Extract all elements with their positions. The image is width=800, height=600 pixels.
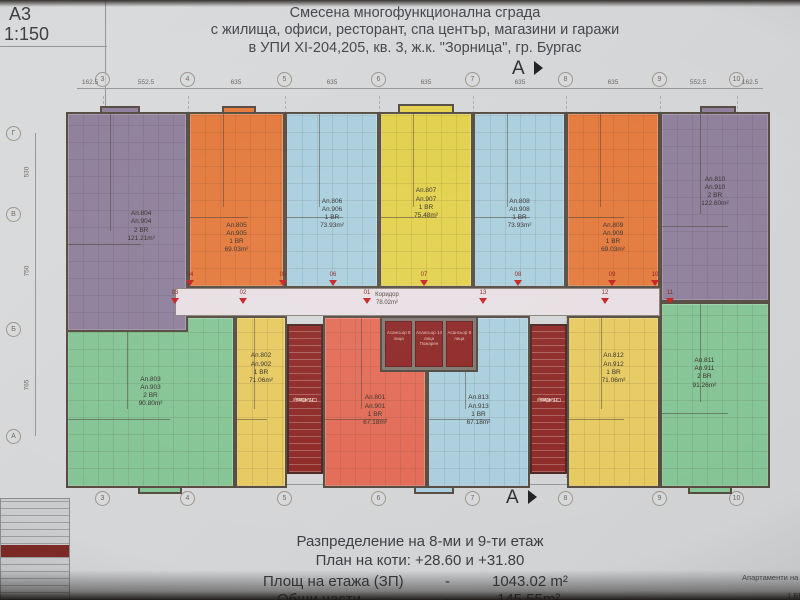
dim-left-2: 750: [24, 266, 31, 277]
title-line-3: в УПИ XI-204,205, кв. 3, ж.к. "Зорница",…: [130, 40, 700, 57]
grid-bubble-bottom-7: 7: [465, 491, 480, 506]
grid-bubble-top-5: 5: [277, 72, 292, 87]
sheet-format: А3: [9, 4, 31, 25]
floor-area-value: 1043.02 m²: [492, 573, 568, 590]
dim-top-4: 635: [327, 79, 338, 86]
grid-bubble-bottom-5: 5: [277, 491, 292, 506]
stair-area: 22.42m²: [539, 396, 557, 402]
grid-bubble-top-7: 7: [465, 72, 480, 87]
apt-id: Ап.909: [601, 230, 625, 238]
entrance-arrow-icon: [363, 298, 371, 304]
floor-distribution-title: Разпределение на 8-ми и 9-ти етаж: [40, 533, 800, 550]
elevator-middle: Асансьор 14 лица Пожарен: [415, 321, 442, 367]
apt-id: Ап.913: [467, 402, 491, 410]
apt-id: Ап.905: [225, 230, 249, 238]
apt-id: Ап.802: [249, 352, 273, 360]
apartment-811: Ап.811 Ап.911 2 BR 91.26m²: [660, 302, 770, 488]
elevator-right: Асансьор 8 лица: [446, 321, 473, 367]
entrance-arrow-icon: [666, 298, 674, 304]
apt-rooms: 1 BR: [363, 410, 387, 418]
apt-area: 71.06m²: [249, 377, 273, 385]
apt-id: Ап.912: [602, 360, 626, 368]
apt-area: 73.93m²: [320, 222, 344, 230]
apartment-810: Ап.810 Ап.910 2 BR 122.60m²: [660, 112, 770, 302]
entrance-arrow-icon: [651, 280, 659, 286]
grid-bubble-top-9: 9: [652, 72, 667, 87]
stairwell-left: Стълбище 22.42m²: [287, 324, 323, 474]
entrance-number: 11: [667, 290, 673, 296]
dim-top-1: 162.5: [82, 79, 98, 86]
apt-rooms: 1 BR: [225, 238, 249, 246]
apt-id: Ап.908: [508, 206, 532, 214]
dim-left-3: 765: [24, 380, 31, 391]
common-area-dash: -: [445, 591, 450, 600]
apartment-806: Ап.806 Ап.906 1 BR 73.93m²: [285, 112, 379, 288]
apt-area: 90.80m²: [139, 400, 163, 408]
dim-top-6: 635: [515, 79, 526, 86]
apt-id: Ап.803: [139, 376, 163, 384]
title-block-line-h: [0, 46, 107, 47]
apt-id: Ап.903: [139, 384, 163, 392]
entrance-arrow-icon: [608, 280, 616, 286]
section-marker-bottom: А: [506, 487, 519, 509]
grid-bubble-top-8: 8: [558, 72, 573, 87]
entrance-number: 01: [364, 290, 371, 296]
apt-rooms: 1 BR: [467, 410, 491, 418]
apartment-809: Ап.809 Ап.909 1 BR 69.03m²: [566, 112, 660, 288]
elevation-band: [1, 545, 69, 557]
apt-id: Ап.801: [363, 394, 387, 402]
apt-rooms: 1 BR: [414, 203, 438, 211]
apt-id: Ап.911: [692, 365, 716, 373]
sheet-scale: 1:150: [4, 24, 49, 45]
apt-rooms: 1 BR: [601, 238, 625, 246]
elevator-core: Асансьор 8 лица Асансьор 14 лица Пожарен…: [380, 316, 478, 372]
apt-area: 91.26m²: [692, 381, 716, 389]
entrance-arrow-icon: [186, 280, 194, 286]
title-line-2: с жилища, офиси, ресторант, спа център, …: [130, 22, 700, 39]
grid-bubble-bottom-3: 3: [95, 491, 110, 506]
apartment-812: Ап.812 Ап.912 1 BR 71.06m²: [567, 316, 660, 488]
apt-id: Ап.812: [602, 352, 626, 360]
apt-id: Ап.901: [363, 402, 387, 410]
grid-bubble-left-v: В: [6, 207, 21, 222]
grid-bubble-top-4: 4: [180, 72, 195, 87]
dimension-line-left: [35, 133, 36, 436]
stairwell-right: Стълбище 22.42m²: [530, 324, 567, 474]
apt-id: Ап.811: [692, 357, 716, 365]
corner-note-2: 1 BR:: [787, 591, 800, 600]
apt-id: Ап.808: [508, 198, 532, 206]
grid-bubble-bottom-4: 4: [180, 491, 195, 506]
entrance-number: 02: [240, 290, 247, 296]
grid-bubble-bottom-9: 9: [652, 491, 667, 506]
dim-top-5: 635: [421, 79, 432, 86]
apt-id: Ап.810: [701, 176, 728, 184]
apt-id: Ап.809: [601, 222, 625, 230]
apartment-807: Ап.807 Ап.907 1 BR 75.48m²: [379, 112, 473, 288]
floor-area-label: Площ на етажа (ЗП): [263, 573, 404, 590]
dimension-line-top: [77, 88, 763, 89]
apt-area: 69.03m²: [225, 246, 249, 254]
stair-area: 22.42m²: [296, 396, 314, 402]
grid-bubble-left-g: Г: [6, 126, 21, 141]
floor-area-dash: -: [445, 573, 450, 590]
apt-id: Ап.813: [467, 394, 491, 402]
apt-id: Ап.806: [320, 198, 344, 206]
grid-bubble-bottom-8: 8: [558, 491, 573, 506]
apt-area: 122.60m²: [701, 200, 728, 208]
entrance-number: 03: [172, 290, 179, 296]
entrance-number: 13: [480, 290, 487, 296]
entrance-arrow-icon: [171, 298, 179, 304]
entrance-arrow-icon: [479, 298, 487, 304]
apt-id: Ап.906: [320, 206, 344, 214]
apartment-805: Ап.805 Ап.905 1 BR 69.03m²: [188, 112, 285, 288]
apt-rooms: 1 BR: [508, 214, 532, 222]
entrance-arrow-icon: [420, 280, 428, 286]
entrance-number: 08: [515, 272, 522, 278]
apt-area: 69.03m²: [601, 246, 625, 254]
apt-rooms: 1 BR: [249, 368, 273, 376]
apt-rooms: 2 BR: [127, 226, 154, 234]
dim-top-7: 635: [608, 79, 619, 86]
grid-bubble-top-6: 6: [371, 72, 386, 87]
apt-id: Ап.902: [249, 360, 273, 368]
apartment-803: Ап.803 Ап.903 2 BR 90.80m²: [66, 316, 235, 488]
levels-line: План на коти: +28.60 и +31.80: [40, 552, 800, 569]
common-area-value: 145.55m²: [497, 591, 560, 600]
section-arrow-top-icon: [534, 61, 543, 75]
dim-top-3: 635: [231, 79, 242, 86]
corridor-label: Коридор 78.02m²: [375, 292, 399, 307]
entrance-arrow-icon: [329, 280, 337, 286]
apt-id: Ап.907: [414, 195, 438, 203]
dim-left-1: 530: [24, 167, 31, 178]
section-marker-top: А: [512, 58, 525, 80]
apt-area: 67.18m²: [467, 419, 491, 427]
apt-area: 67.18m²: [363, 419, 387, 427]
apt-id: Ап.904: [127, 218, 154, 226]
grid-bubble-left-b: Б: [6, 322, 21, 337]
apt-rooms: 2 BR: [139, 392, 163, 400]
entrance-number: 12: [602, 290, 609, 296]
entrance-number: 07: [421, 272, 428, 278]
apt-area: 121.21m²: [127, 234, 154, 242]
apt-id: Ап.805: [225, 222, 249, 230]
common-area-label: Общи части: [277, 591, 361, 600]
grid-bubble-left-a: А: [6, 429, 21, 444]
apt-rooms: 2 BR: [701, 192, 728, 200]
apt-area: 73.93m²: [508, 222, 532, 230]
elevation-fragment: [0, 498, 70, 600]
corridor-name: Коридор: [375, 292, 399, 300]
elevator-left: Асансьор 8 лица: [385, 321, 412, 367]
drawing-title: Смесена многофункционална сграда с жилищ…: [130, 5, 700, 57]
dim-top-2: 552.5: [138, 79, 154, 86]
section-arrow-bottom-icon: [528, 490, 537, 504]
entrance-arrow-icon: [239, 298, 247, 304]
entrance-number: 09: [609, 272, 616, 278]
corridor-area: 78.02m²: [375, 300, 399, 308]
apt-rooms: 1 BR: [320, 214, 344, 222]
apartment-804: Ап.804 Ап.904 2 BR 121.21m²: [66, 112, 188, 332]
apartment-802: Ап.802 Ап.902 1 BR 71.06m²: [235, 316, 287, 488]
apt-id: Ап.910: [701, 184, 728, 192]
apt-id: Ап.807: [414, 187, 438, 195]
dim-top-8: 552.5: [690, 79, 706, 86]
entrance-number: 04: [187, 272, 194, 278]
entrance-number: 05: [280, 272, 287, 278]
entrance-arrow-icon: [514, 280, 522, 286]
entrance-arrow-icon: [601, 298, 609, 304]
title-line-1: Смесена многофункционална сграда: [130, 5, 700, 22]
apt-area: 75.48m²: [414, 212, 438, 220]
apt-area: 71.06m²: [602, 377, 626, 385]
apt-rooms: 1 BR: [602, 368, 626, 376]
entrance-arrow-icon: [279, 280, 287, 286]
apt-id: Ап.804: [127, 210, 154, 218]
entrance-number: 06: [330, 272, 337, 278]
dim-top-9: 162.5: [742, 79, 758, 86]
apt-rooms: 2 BR: [692, 373, 716, 381]
corridor: [175, 288, 660, 316]
drawing-photo: А3 1:150 Смесена многофункционална сград…: [0, 0, 800, 600]
grid-bubble-bottom-6: 6: [371, 491, 386, 506]
entrance-number: 10: [652, 272, 659, 278]
apartment-808: Ап.808 Ап.908 1 BR 73.93m²: [473, 112, 566, 288]
corner-note: Апартаменти на: [742, 573, 798, 582]
